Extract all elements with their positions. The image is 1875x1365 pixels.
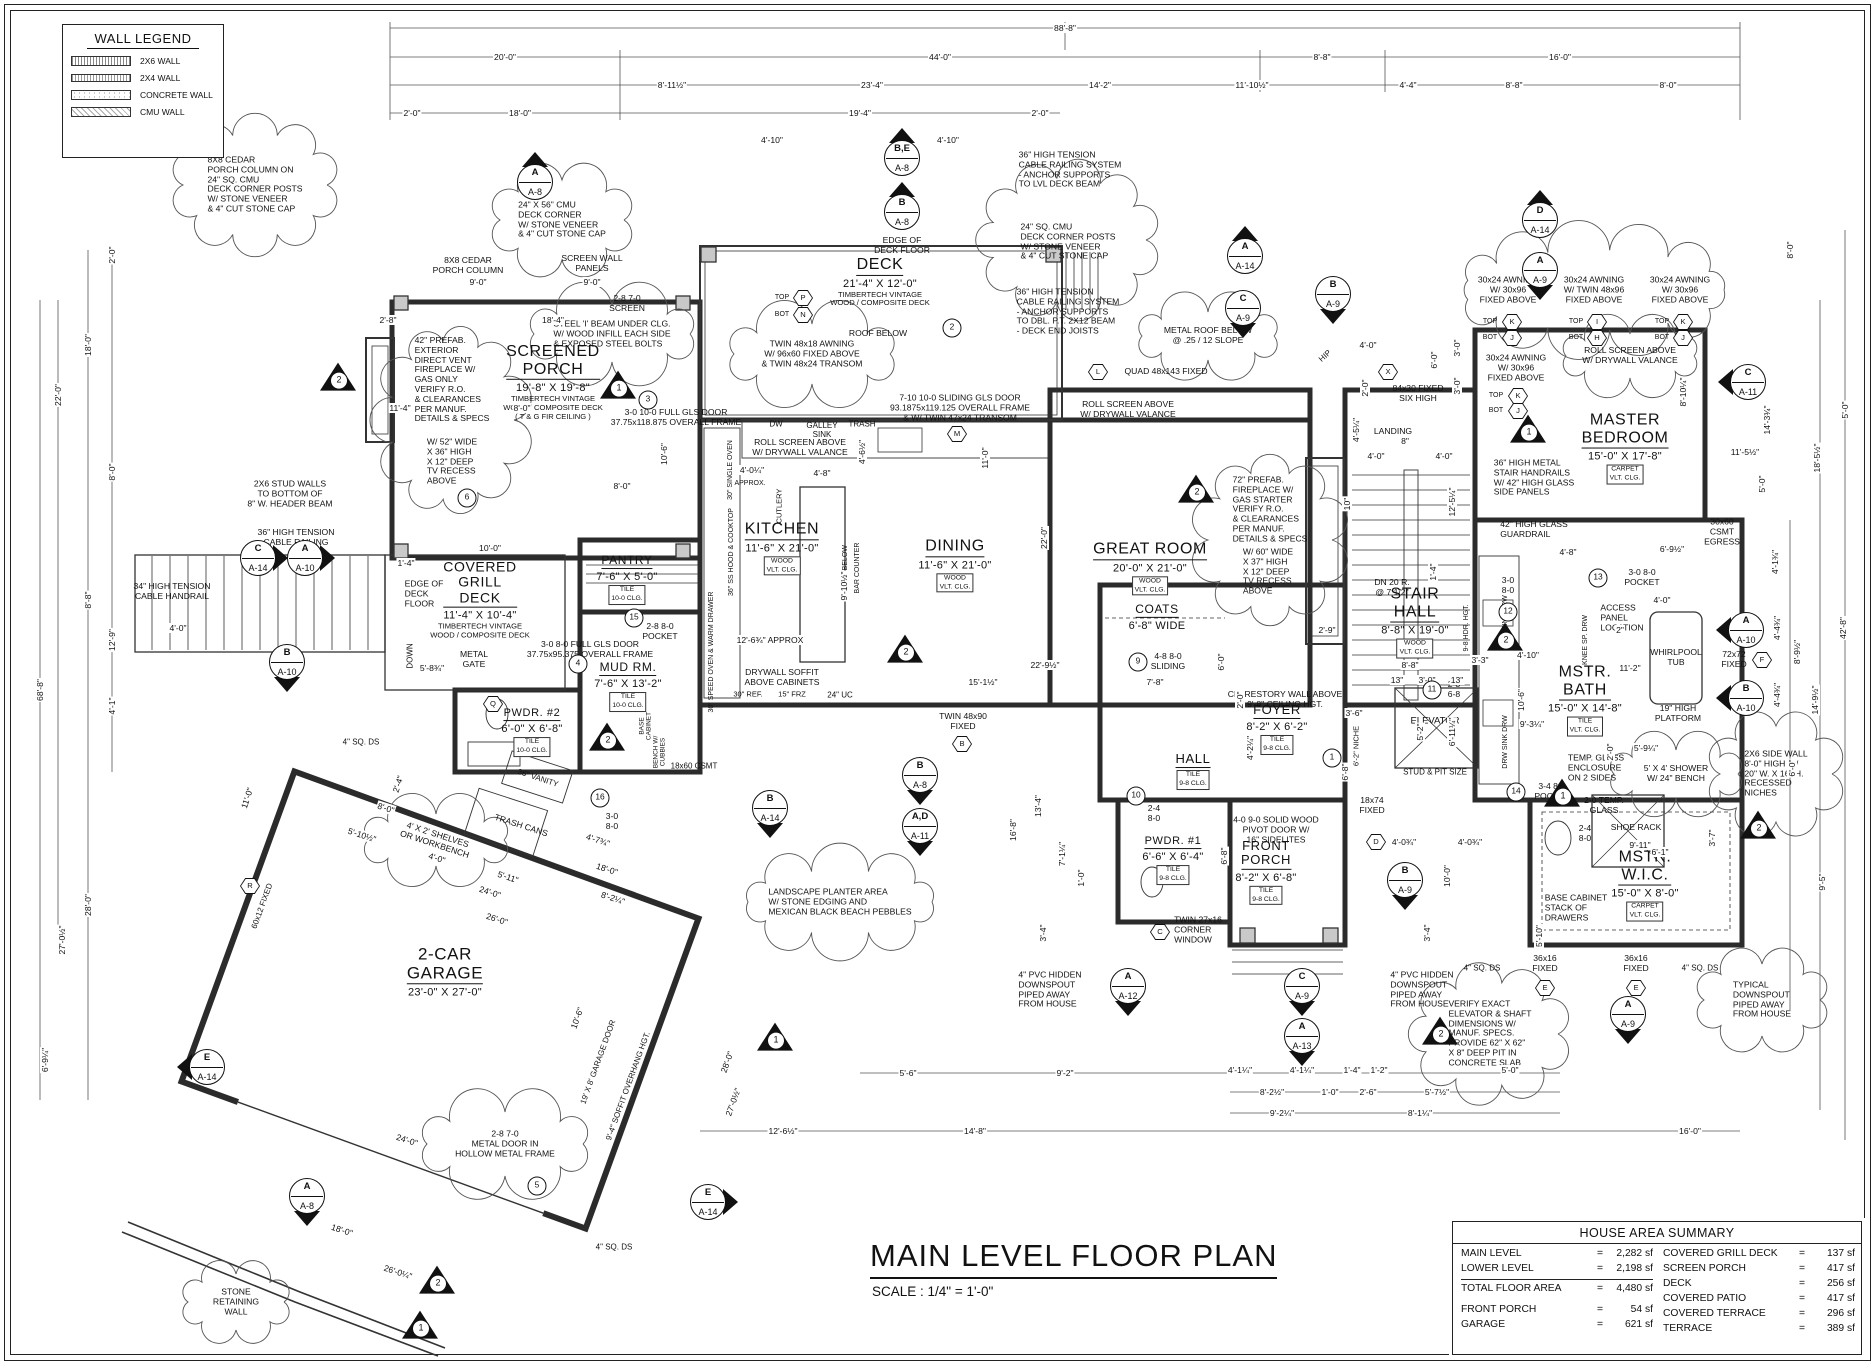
dim-label: 2'-8" — [378, 315, 397, 325]
annotation: KNEE SP. DRW — [1582, 615, 1590, 665]
annotation: ROLL SCREEN ABOVE W/ DRYWALL VALANCE — [752, 438, 848, 458]
room-finish-tag: TILE 10-0 CLG. — [501, 735, 562, 757]
annotation: BOT — [1569, 334, 1583, 342]
section-marker: AA-10 — [286, 539, 324, 577]
annotation: 36" HIGH TENSION CABLE RAILING SYSTEM - … — [1019, 150, 1122, 189]
finish-tag: WOOD VLT. CLG. — [1397, 639, 1434, 659]
house-area-summary-title: HOUSE AREA SUMMARY — [1453, 1222, 1861, 1244]
section-marker: AA-8 — [288, 1177, 326, 1215]
window-tag — [1378, 364, 1398, 380]
keynote-triangle: 2 — [589, 723, 625, 751]
annotation: EDGE OF DECK FLOOR — [874, 236, 930, 256]
dim-label: 28'-0" — [83, 893, 93, 917]
section-marker-sheet: A-10 — [1727, 635, 1765, 645]
room-dimensions: 6'-0" X 6'-8" — [501, 723, 562, 735]
room-subtitle: TIMBERTECH VINTAGE WOOD / COMPOSITE DECK — [430, 623, 530, 640]
annotation: 4" SQ. DS — [343, 737, 380, 746]
dim-label: 20'-0" — [493, 52, 517, 62]
section-marker-sheet: A-9 — [1314, 299, 1352, 309]
section-marker-sheet: A-10 — [268, 667, 306, 677]
summary-row-label: GARAGE — [1461, 1318, 1594, 1333]
room-dimensions: 7'-6" X 13'-2" — [594, 678, 662, 690]
finish-tag: TILE 9-8 CLG. — [1249, 886, 1283, 906]
annotation: 36" HIGH METAL STAIR HANDRAILS W/ 42" HI… — [1494, 458, 1574, 497]
room-name: PWDR. #1 — [1145, 835, 1202, 849]
dim-label: 8'-1¼" — [1407, 1108, 1433, 1118]
section-marker-sheet: A-14 — [1521, 225, 1559, 235]
dim-label: 14'-8" — [963, 1126, 987, 1136]
section-marker-letter: A — [286, 543, 324, 554]
door-tag: 10 — [1127, 787, 1146, 806]
dim-label: 8" — [1400, 436, 1410, 446]
dim-label: 8'-8" — [1400, 660, 1419, 670]
room-finish-tag: CARPET VLT. CLG. — [1582, 463, 1669, 485]
dim-label: 26'-0" — [484, 911, 510, 928]
annotation: 2-8 8-0 POCKET — [642, 622, 677, 642]
dim-label: 16'-8" — [1008, 818, 1018, 842]
dim-label: 22'-9½" — [1029, 660, 1060, 670]
room-label: MSTR. BATH15'-0" X 14'-8"TILE VLT. CLG. — [1548, 664, 1622, 737]
finish-tag: TILE 10-0 CLG. — [608, 585, 645, 605]
room-finish-tag: TILE 9-8 CLG. — [1176, 768, 1211, 790]
room-dimensions: 6'-8" WIDE — [1129, 620, 1186, 632]
dim-label: 5'-8¾" — [419, 663, 445, 673]
dim-label: 5'-0" — [1757, 474, 1767, 493]
annotation: STEEL 'I' BEAM UNDER CLG. W/ WOOD INFILL… — [553, 319, 670, 348]
dim-label: 2'-9" — [1317, 625, 1336, 635]
room-dimensions: 21'-4" X 12'-0" — [830, 278, 930, 290]
summary-row: LOWER LEVEL=2,198 sf — [1461, 1262, 1653, 1277]
room-name: MSTR. BATH — [1559, 664, 1612, 701]
dim-label: 4'-0" — [1358, 340, 1377, 350]
finish-tag: TILE 9-8 CLG. — [1156, 865, 1190, 885]
door-tag: 12 — [1499, 603, 1518, 622]
section-marker-sheet: A-13 — [1283, 1041, 1321, 1051]
dim-label: 9'-2" — [1055, 1068, 1074, 1078]
dim-label: 1'-2" — [1369, 1065, 1388, 1075]
section-marker-letter: C — [1283, 971, 1321, 982]
annotation: 36" HIGH TENSION CABLE RAILING SYSTEM - … — [1017, 288, 1120, 337]
section-marker-letter: A — [1226, 241, 1264, 252]
room-dimensions: 15'-0" X 8'-0" — [1611, 888, 1679, 900]
dim-label: 10'-6" — [568, 1005, 586, 1031]
keynote-number: 1 — [610, 380, 628, 398]
room-finish-tag: TILE 10-0 CLG. — [594, 690, 662, 712]
dim-label: 4'-7¾" — [584, 831, 612, 849]
room-name: DINING — [925, 537, 985, 557]
annotation: 2-4 8-0 — [1148, 804, 1160, 824]
section-marker-sheet: A-9 — [1224, 313, 1262, 323]
room-finish-tag: WOOD VLT. CLG. — [1093, 574, 1207, 596]
dim-label: 4'-0" — [1366, 451, 1385, 461]
dim-label: 3'-4" — [1422, 923, 1432, 942]
summary-row-equals: = — [1796, 1322, 1808, 1337]
room-label: PWDR. #26'-0" X 6'-8"TILE 10-0 CLG. — [501, 703, 562, 757]
section-marker-sheet: A-10 — [286, 563, 324, 573]
annotation: 7-10 10-0 SLIDING GLS DOOR 93.1875x119.1… — [890, 393, 1030, 422]
dim-label: 23'-4" — [860, 80, 884, 90]
dim-label: 7'-1¼" — [1057, 841, 1067, 867]
dim-label: 3'-4" — [1038, 923, 1048, 942]
summary-row-label: COVERED TERRACE — [1663, 1307, 1796, 1322]
summary-row-label: COVERED GRILL DECK — [1663, 1247, 1796, 1262]
room-name: COATS — [1135, 603, 1178, 618]
section-marker-letter: A — [1609, 999, 1647, 1010]
floor-plan-title: MAIN LEVEL FLOOR PLAN — [870, 1238, 1277, 1279]
section-marker-sheet: A-9 — [1283, 991, 1321, 1001]
room-label: DINING11'-6" X 21'-0"WOOD VLT. CLG. — [918, 537, 991, 592]
section-marker-letter: A — [1109, 971, 1147, 982]
finish-tag: TILE VLT. CLG. — [1567, 717, 1604, 737]
keynote-number: 2 — [599, 732, 617, 750]
section-marker-letter: A — [1727, 615, 1765, 626]
window-tag — [952, 736, 972, 752]
door-tag: 15 — [625, 609, 644, 628]
summary-row: GARAGE=621 sf — [1461, 1318, 1653, 1333]
summary-row-equals: = — [1594, 1247, 1606, 1262]
keynote-triangle: 2 — [1422, 1017, 1458, 1045]
finish-tag: WOOD VLT. CLG. — [937, 573, 974, 593]
dim-label: 5'-0" — [1500, 1065, 1519, 1075]
section-marker: CA-9 — [1224, 289, 1262, 327]
dim-label: 4'-10" — [1516, 650, 1540, 660]
window-tag — [1502, 330, 1522, 346]
section-marker-letter: E — [188, 1052, 226, 1063]
finish-tag: CARPET VLT. CLG. — [1607, 465, 1644, 485]
room-label: HALLTILE 9-8 CLG. — [1176, 750, 1211, 790]
annotation: BOT — [1489, 407, 1503, 415]
summary-row-label: SCREEN PORCH — [1663, 1262, 1796, 1277]
dim-label: 13'-4" — [1033, 794, 1043, 818]
annotation: SHOE RACK — [1611, 823, 1662, 833]
wall-swatch-speckle — [71, 90, 131, 100]
window-tag — [1508, 388, 1528, 404]
dim-label: 24'-0" — [394, 1132, 420, 1149]
wall-legend-items: 2X6 WALL2X4 WALLCONCRETE WALLCMU WALL — [63, 56, 223, 117]
dim-label: 12'-6¾" APPROX — [736, 635, 805, 645]
dim-label: 10" — [1342, 497, 1352, 512]
annotation: TOP — [775, 294, 789, 302]
dim-label: 14'-2" — [1088, 80, 1112, 90]
summary-row-value: 296 sf — [1808, 1307, 1855, 1322]
room-label: MASTER BEDROOM15'-0" X 17'-8"CARPET VLT.… — [1582, 412, 1669, 485]
dim-label: 2'-0" — [402, 108, 421, 118]
summary-row: MAIN LEVEL=2,282 sf — [1461, 1247, 1653, 1262]
annotation: 30x24 AWNING W/ 30x96 FIXED ABOVE — [1486, 353, 1546, 382]
dim-label: 19'-4" — [848, 108, 872, 118]
dim-label: 4'-0" — [168, 623, 187, 633]
annotation: TOP — [1489, 392, 1503, 400]
annotation: BAR COUNTER — [854, 543, 862, 594]
room-name: HALL — [1176, 752, 1211, 768]
window-tag — [1752, 652, 1772, 668]
section-marker-sheet: A-11 — [901, 831, 939, 841]
window-tag — [1088, 364, 1108, 380]
annotation: 9-8 HDR. HGT. — [1463, 604, 1471, 651]
annotation: BENCH W/ CUBBIES — [653, 736, 668, 769]
section-marker: CA-11 — [1729, 363, 1767, 401]
keynote-number: 2 — [1432, 1026, 1450, 1044]
section-marker-letter: B — [883, 197, 921, 208]
dim-label: 8'-0" — [512, 403, 531, 413]
annotation: QUAD 48x143 FIXED — [1124, 367, 1207, 377]
room-name: PWDR. #2 — [504, 707, 561, 721]
dim-label: 1'-4" — [1342, 1065, 1361, 1075]
dim-label: 18'-0" — [329, 1222, 355, 1239]
room-finish-tag: WOOD VLT. CLG. — [1381, 637, 1449, 659]
dim-label: 6'-8" — [1340, 762, 1350, 781]
annotation: TYPICAL DOWNSPOUT PIPED AWAY FROM HOUSE — [1733, 980, 1791, 1019]
dim-label: 9'-3¼" — [1519, 719, 1545, 729]
summary-row-value: 621 sf — [1606, 1318, 1653, 1333]
room-label: DECK21'-4" X 12'-0"TIMBERTECH VINTAGE WO… — [830, 256, 930, 308]
dim-label: 2'-4" — [390, 773, 405, 794]
finish-tag: WOOD VLT. CLG. — [764, 556, 801, 576]
legend-item-label: 2X4 WALL — [140, 73, 180, 83]
annotation: 24" SQ. CMU DECK CORNER POSTS W/ STONE V… — [1020, 222, 1115, 261]
annotation: 4" SQ. DS — [1682, 963, 1719, 972]
room-label: COATS6'-8" WIDE — [1129, 600, 1186, 632]
dim-label: 3'-3" — [1470, 655, 1489, 665]
annotation: 24" X 56" CMU DECK CORNER W/ STONE VENEE… — [518, 200, 606, 239]
dim-label: 6'-9¼" — [40, 1047, 50, 1073]
summary-row-equals: = — [1594, 1303, 1606, 1318]
dim-label: 8'-0" — [107, 462, 117, 481]
keynote-triangle: 2 — [419, 1266, 455, 1294]
door-tag: 9 — [1129, 653, 1148, 672]
keynote-triangle: 1 — [1544, 779, 1580, 807]
dim-label: 9'-2¼" — [1269, 1108, 1295, 1118]
annotation: ROLL SCREEN ABOVE W/ DRYWALL VALANCE — [1582, 346, 1678, 366]
annotation: BASE CABINET STACK OF DRAWERS — [1545, 893, 1608, 922]
room-dimensions: 11'-6" X 21'-0" — [745, 542, 819, 554]
section-marker-letter: B — [751, 793, 789, 804]
section-marker: AA-12 — [1109, 967, 1147, 1005]
dim-label: 9'-11" — [1628, 840, 1651, 850]
keynote-number: 1 — [412, 1320, 430, 1338]
section-marker-sheet: A-8 — [883, 217, 921, 227]
keynote-number: 1 — [767, 1032, 785, 1050]
annotation: 72" PREFAB. FIREPLACE W/ GAS STARTER VER… — [1233, 476, 1308, 545]
dim-label: 11'-0" — [239, 785, 256, 810]
dim-label: 8'-8" — [83, 590, 93, 609]
dim-label: 12'-6½" — [767, 1126, 798, 1136]
dim-label: 9'-0" — [582, 277, 601, 287]
annotation: SCREEN WALL PANELS — [561, 254, 622, 274]
room-dimensions: 8'-2" X 6'-8" — [1235, 871, 1296, 883]
section-marker-sheet: A-14 — [689, 1207, 727, 1217]
annotation: TRASH CANS — [493, 813, 549, 839]
finish-tag: TILE 9-8 CLG. — [1176, 770, 1210, 790]
room-dimensions: 8'-8" X 19'-0" — [1381, 625, 1449, 637]
keynote-triangle: 1 — [402, 1311, 438, 1339]
window-tag — [1673, 314, 1693, 330]
annotation: 2-4 8-0 — [1579, 824, 1591, 844]
door-tag: 6 — [458, 489, 477, 508]
room-finish-tag: CARPET VLT. CLG. — [1611, 900, 1679, 922]
summary-row-label: LOWER LEVEL — [1461, 1262, 1594, 1277]
annotation: 9'-4" SOFFIT OVERHANG HGT. — [604, 1030, 652, 1141]
dim-label: 5'-10½" — [346, 825, 379, 844]
annotation: 4-8 8-0 SLIDING — [1151, 652, 1185, 672]
keynote-number: 2 — [429, 1275, 447, 1293]
legend-item-label: 2X6 WALL — [140, 56, 180, 66]
wall-legend-title: WALL LEGEND — [87, 31, 199, 49]
dim-label: 11'-10½" — [1234, 80, 1269, 90]
room-finish-tag: TILE 9-8 CLG. — [1246, 733, 1307, 755]
legend-item: CONCRETE WALL — [71, 90, 215, 100]
annotation: W/ 52" WIDE X 36" HIGH X 12" DEEP TV REC… — [427, 438, 477, 487]
annotation: STUD & PIT SIZE — [1403, 767, 1467, 776]
annotation: 2-8 7-0 SCREEN — [609, 294, 645, 314]
annotation: 3-0 10-0 FULL GLS DOOR 37.75x118.875 OVE… — [611, 408, 741, 428]
dim-label: 4'-6½" — [857, 439, 867, 465]
annotation: BASE CABINET — [639, 712, 654, 740]
annotation: 36" VANITY — [516, 767, 559, 789]
section-marker-letter: D — [1521, 205, 1559, 216]
finish-tag: TILE 10-0 CLG. — [609, 692, 646, 712]
summary-row-equals: = — [1594, 1262, 1606, 1277]
window-tag — [1502, 314, 1522, 330]
finish-tag: CARPET VLT. CLG. — [1627, 902, 1664, 922]
section-marker-sheet: A-8 — [901, 780, 939, 790]
room-dimensions: 23'-0" X 27'-0" — [407, 987, 483, 999]
section-marker-letter: A — [516, 167, 554, 178]
summary-row-equals: = — [1796, 1292, 1808, 1307]
annotation: 4" PVC HIDDEN DOWNSPOUT PIPED AWAY FROM … — [1390, 970, 1453, 1009]
room-finish-tag: TILE VLT. CLG. — [1548, 715, 1622, 737]
section-marker-sheet: A-14 — [188, 1072, 226, 1082]
window-tag — [1587, 314, 1607, 330]
annotation: TWIN 48x90 FIXED — [939, 712, 987, 732]
section-marker: BA-14 — [751, 789, 789, 827]
annotation: TOP — [1483, 318, 1497, 326]
room-label: FRONT PORCH8'-2" X 6'-8"TILE 9-8 CLG. — [1235, 839, 1296, 905]
dim-label: 42'-8" — [1838, 616, 1848, 640]
summary-row: FRONT PORCH=54 sf — [1461, 1303, 1653, 1318]
dim-label: 44'-0" — [928, 52, 952, 62]
room-subtitle: TIMBERTECH VINTAGE WOOD / COMPOSITE DECK — [830, 291, 930, 308]
section-marker: AA-14 — [1226, 237, 1264, 275]
dim-label: 18'-0" — [508, 108, 532, 118]
annotation: CUTLERY — [776, 489, 785, 524]
dim-label: 9'-10½" — [839, 570, 849, 601]
section-marker-letter: B — [268, 647, 306, 658]
annotation: 4-0 9-0 SOLID WOOD PIVOT DOOR W/ 16" SID… — [1233, 815, 1318, 844]
dim-label: 4'-1¾" — [1770, 549, 1780, 575]
room-label: MUD RM.7'-6" X 13'-2"TILE 10-0 CLG. — [594, 658, 662, 712]
dim-label: 68'-8" — [35, 678, 45, 702]
section-marker: AA-8 — [516, 163, 554, 201]
room-name: COVERED GRILL DECK — [443, 560, 516, 608]
summary-row-label: TOTAL FLOOR AREA — [1461, 1282, 1594, 1297]
dim-label: 8'-0" — [1658, 80, 1677, 90]
door-tag: 14 — [1507, 783, 1526, 802]
window-tag — [1626, 980, 1646, 996]
dim-label: 4'-4¾" — [1772, 682, 1782, 708]
annotation: 4" SQ. DS — [1464, 963, 1501, 972]
section-marker: BA-8 — [883, 193, 921, 231]
window-tag — [1587, 330, 1607, 346]
annotation: 19" HIGH PLATFORM — [1655, 704, 1701, 724]
door-tag: 2 — [943, 319, 962, 338]
dim-label: 6'-0" — [1216, 652, 1226, 671]
room-dimensions: 6'-6" X 6'-4" — [1142, 851, 1203, 863]
dim-label: 27'-0½" — [57, 924, 67, 955]
room-dimensions: 15'-0" X 14'-8" — [1548, 703, 1622, 715]
dim-label: 27'-0½" — [723, 1086, 743, 1119]
dim-label: 26'-0¼" — [382, 1262, 415, 1281]
keynote-number: 2 — [330, 372, 348, 390]
room-dimensions: 15'-0" X 17'-8" — [1582, 451, 1669, 463]
annotation: GALLEY SINK — [806, 421, 837, 439]
dim-label: 5'-10" — [1534, 924, 1544, 948]
section-marker: AA-13 — [1283, 1017, 1321, 1055]
annotation: TWIN 48x18 AWNING W/ 96x60 FIXED ABOVE &… — [762, 339, 863, 368]
window-tag — [1673, 330, 1693, 346]
legend-item-label: CMU WALL — [140, 107, 185, 117]
room-finish-tag: WOOD VLT. CLG. — [918, 571, 991, 593]
summary-row-value: 389 sf — [1808, 1322, 1855, 1337]
summary-row-equals: = — [1594, 1318, 1606, 1333]
room-name: MASTER BEDROOM — [1582, 412, 1669, 449]
annotation: BOT — [775, 311, 789, 319]
annotation: 3-0 8-0 — [1502, 576, 1514, 596]
section-marker: B,EA-8 — [883, 139, 921, 177]
scale-label: SCALE : 1/4" = 1'-0" — [872, 1284, 993, 1299]
annotation: 24" UC — [827, 690, 853, 699]
dim-label: 10'-6" — [1516, 688, 1526, 712]
summary-row-value: 54 sf — [1606, 1303, 1653, 1318]
section-marker: CA-14 — [239, 539, 277, 577]
annotation: 3-0 8-0 — [606, 812, 618, 832]
annotation: 4" SQ. DS — [596, 1242, 633, 1251]
dim-label: 18'-0" — [83, 333, 93, 357]
section-marker-sheet: A-8 — [883, 163, 921, 173]
dim-label: 2'-6" — [1358, 1087, 1377, 1097]
section-marker-letter: E — [689, 1187, 727, 1198]
annotation: WHIRLPOOL TUB — [1650, 648, 1702, 668]
dim-label: 4'-1¼" — [1289, 1065, 1315, 1075]
room-dimensions: 11'-6" X 21'-0" — [918, 559, 991, 571]
summary-row-label: FRONT PORCH — [1461, 1303, 1594, 1318]
summary-row-value: 256 sf — [1808, 1277, 1855, 1292]
section-marker: BA-10 — [1727, 679, 1765, 717]
plan-annotation-layer: SCREENED PORCH19'-8" X 19'-8"TIMBERTECH … — [0, 0, 1875, 1365]
annotation: 2X6 SIDE WALL 8'-0" HIGH W/ 20" W. X 16"… — [1744, 750, 1807, 799]
annotation: 84x30 FIXED SIX HIGH — [1392, 384, 1443, 404]
annotation: HIP — [1317, 348, 1333, 364]
annotation: APPROX. — [734, 480, 765, 488]
annotation: 42" PREFAB. EXTERIOR DIRECT VENT FIREPLA… — [415, 336, 490, 424]
dim-label: 1'-4" — [1428, 562, 1438, 581]
section-marker: EA-14 — [689, 1183, 727, 1221]
door-tag: 4 — [569, 655, 588, 674]
annotation: TWIN 27x16 CORNER WINDOW — [1174, 915, 1222, 944]
dim-label: 8'-11½" — [657, 80, 687, 90]
annotation: TOP — [1655, 318, 1669, 326]
annotation: 18x60 CSMT — [671, 761, 718, 770]
window-tag — [1366, 834, 1386, 850]
section-marker-sheet: A-14 — [239, 563, 277, 573]
room-dimensions: 11'-4" X 10'-4" — [430, 610, 530, 622]
dim-label: 4'-0¼" — [739, 465, 765, 475]
window-tag — [793, 307, 813, 323]
dim-label: 6'-8" — [1219, 846, 1229, 865]
keynote-number: 2 — [1750, 820, 1768, 838]
dim-label: 4'-4" — [1398, 80, 1417, 90]
dim-label: 5'-2" — [1415, 722, 1425, 741]
